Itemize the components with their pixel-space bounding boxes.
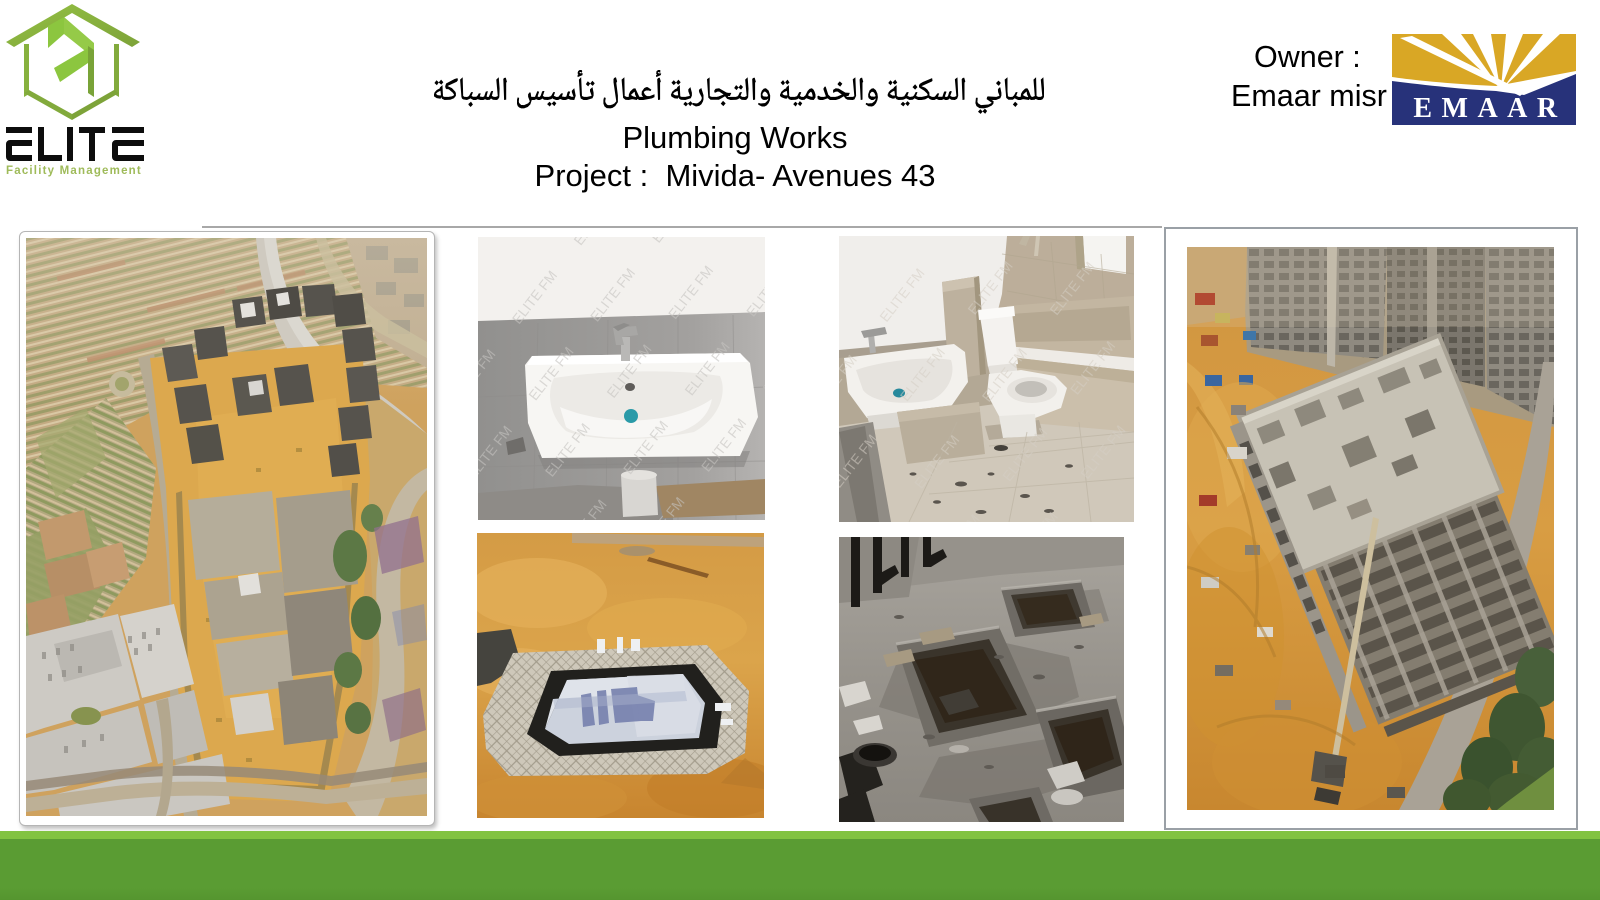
svg-text:EMAAR: EMAAR (1413, 93, 1566, 124)
